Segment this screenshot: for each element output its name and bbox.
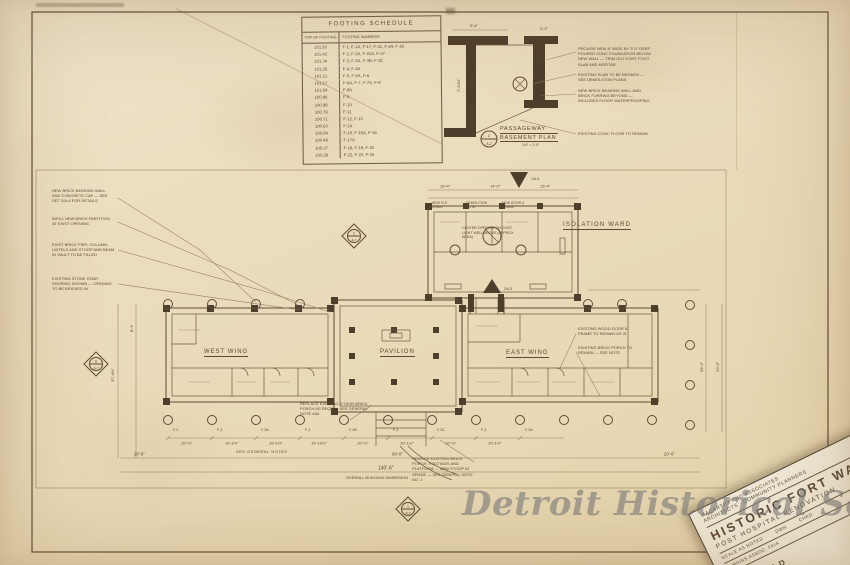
- basement-plan-scale: 1/4″ = 1′-0″: [522, 143, 558, 147]
- plan-note: CENTER OPENING ON EXIST LIGHT WELL ABOVE…: [462, 226, 516, 240]
- plan-note: DEMOLITION NOTE: [466, 201, 496, 210]
- svg-text:10′-¾″: 10′-¾″: [357, 441, 369, 446]
- svg-text:20′-6″: 20′-6″: [715, 361, 720, 372]
- svg-text:1: 1: [407, 505, 409, 509]
- svg-text:33′-2″: 33′-2″: [699, 361, 704, 372]
- svg-text:F-2: F-2: [173, 428, 178, 432]
- basement-note: EXISTING SLAB TO BE BROKEN — SEE DEMOLIT…: [578, 72, 652, 82]
- plan-note: NEW DOOR & FRAME: [502, 201, 532, 210]
- plan-note: EXISTING STONE STAIR SHORING SHOWN — OPE…: [52, 276, 116, 292]
- svg-text:2/A-5: 2/A-5: [504, 287, 512, 291]
- svg-text:99′-6″: 99′-6″: [392, 452, 403, 457]
- plan-note: EXISTING BRICK PORCH TO REMAIN — SEE NOT…: [578, 345, 638, 355]
- svg-text:5′-4″: 5′-4″: [470, 23, 479, 28]
- plan-note: SEE GENERAL NOTES: [236, 449, 296, 454]
- svg-text:10′-1½″: 10′-1½″: [488, 441, 502, 446]
- blueprint-sheet: 5′-4″ 3′-1″ 7′-10½″ 2 A-2: [0, 0, 850, 565]
- svg-text:1/A-5: 1/A-5: [531, 177, 539, 181]
- svg-text:10′-¾″: 10′-¾″: [445, 441, 457, 446]
- svg-text:20′-6″: 20′-6″: [134, 452, 145, 457]
- plan-note: NEW FLR DRAIN: [432, 201, 458, 210]
- isolation-ward-label: ISOLATION WARD: [563, 222, 631, 230]
- svg-text:8′-1″: 8′-1″: [129, 323, 134, 332]
- table-row: 100.29F-22, F-23, F-25: [304, 150, 442, 159]
- pavilion-label: PAVILION: [380, 349, 415, 357]
- svg-text:A-7: A-7: [94, 367, 99, 371]
- porch-columns: [164, 300, 695, 430]
- plan-note: EXISTING WOOD DOOR & FRAME TO REMAIN AS …: [578, 326, 638, 336]
- interior-partitions: [172, 212, 652, 396]
- svg-text:10′-10½″: 10′-10½″: [311, 441, 327, 446]
- svg-text:10′-¾″: 10′-¾″: [181, 441, 193, 446]
- svg-text:2: 2: [353, 232, 355, 236]
- svg-text:F-3: F-3: [481, 428, 486, 432]
- svg-text:F-3C: F-3C: [437, 428, 445, 432]
- svg-text:A-7: A-7: [352, 239, 357, 243]
- svg-text:F-3: F-3: [305, 428, 310, 432]
- svg-text:F-3: F-3: [217, 428, 222, 432]
- col-footing-numbers: FOOTING NUMBERS: [339, 31, 440, 42]
- svg-text:F-2A: F-2A: [525, 428, 533, 432]
- plan-note: INFILL NEW BRICK PARTITION AT EXIST OPEN…: [52, 216, 114, 226]
- overall-dimension: 140′-6″: [378, 466, 394, 472]
- svg-text:F-3B: F-3B: [349, 428, 357, 432]
- svg-text:3′-1″: 3′-1″: [540, 26, 549, 31]
- basement-marker-bottom: A-2: [486, 142, 492, 146]
- footing-schedule-body: 101.50F-1, F-1A, F-17, F-21, F-24, F-26 …: [303, 42, 442, 158]
- footing-schedule-table: FOOTING SCHEDULE TOP OF FOOTING FOOTING …: [301, 15, 443, 164]
- basement-note: PROVIDE NEW 8″ WIDE BY 3′-0″ DEEP POURED…: [578, 46, 652, 67]
- svg-text:10′-1½″: 10′-1½″: [225, 441, 239, 446]
- west-wing-label: WEST WING: [204, 349, 248, 357]
- svg-text:A-2: A-2: [406, 512, 411, 516]
- svg-text:F-3: F-3: [393, 428, 398, 432]
- svg-text:37′-4½″: 37′-4½″: [110, 368, 115, 382]
- plan-note: EXIST BRICK PIER, COLUMN, LINTELS AND ST…: [52, 242, 116, 258]
- overall-dimension-label: OVERALL BUILDING DIMENSION: [346, 475, 408, 480]
- plan-note: REPLACE EXISTING 4″ HIGH BRICK PORCH AS …: [300, 401, 372, 417]
- col-top-of-footing: TOP OF FOOTING: [302, 32, 339, 42]
- plan-note: NEW BRICK BEARING WALL AND CONCRETE CAP …: [52, 188, 114, 204]
- basement-note: NEW BRICK BEARING WALL AND BRICK FURRING…: [578, 88, 652, 104]
- svg-text:10′-1½″: 10′-1½″: [269, 441, 283, 446]
- svg-text:15′-4″: 15′-4″: [440, 184, 451, 189]
- svg-text:F-3A: F-3A: [261, 428, 269, 432]
- svg-text:20′-6″: 20′-6″: [664, 452, 675, 457]
- footing-schedule-title: FOOTING SCHEDULE: [302, 16, 440, 32]
- basement-plan-title: PASSAGEWAY BASEMENT PLAN 1/4″ = 1′-0″: [500, 126, 558, 147]
- plan-note: REMOVE EXISTING BRICK PORCH, FOOTINGS AN…: [412, 456, 474, 482]
- east-wing-label: EAST WING: [506, 350, 549, 358]
- svg-text:10′-1¾″: 10′-1¾″: [400, 441, 414, 446]
- svg-text:6: 6: [95, 360, 97, 364]
- svg-text:7′-10½″: 7′-10½″: [456, 78, 461, 92]
- svg-text:15′-4″: 15′-4″: [540, 184, 551, 189]
- basement-note: EXISTING CONC FLOOR TO REMAIN: [578, 131, 652, 136]
- basement-marker-top: 2: [488, 133, 491, 138]
- svg-text:14′-2″: 14′-2″: [490, 184, 501, 189]
